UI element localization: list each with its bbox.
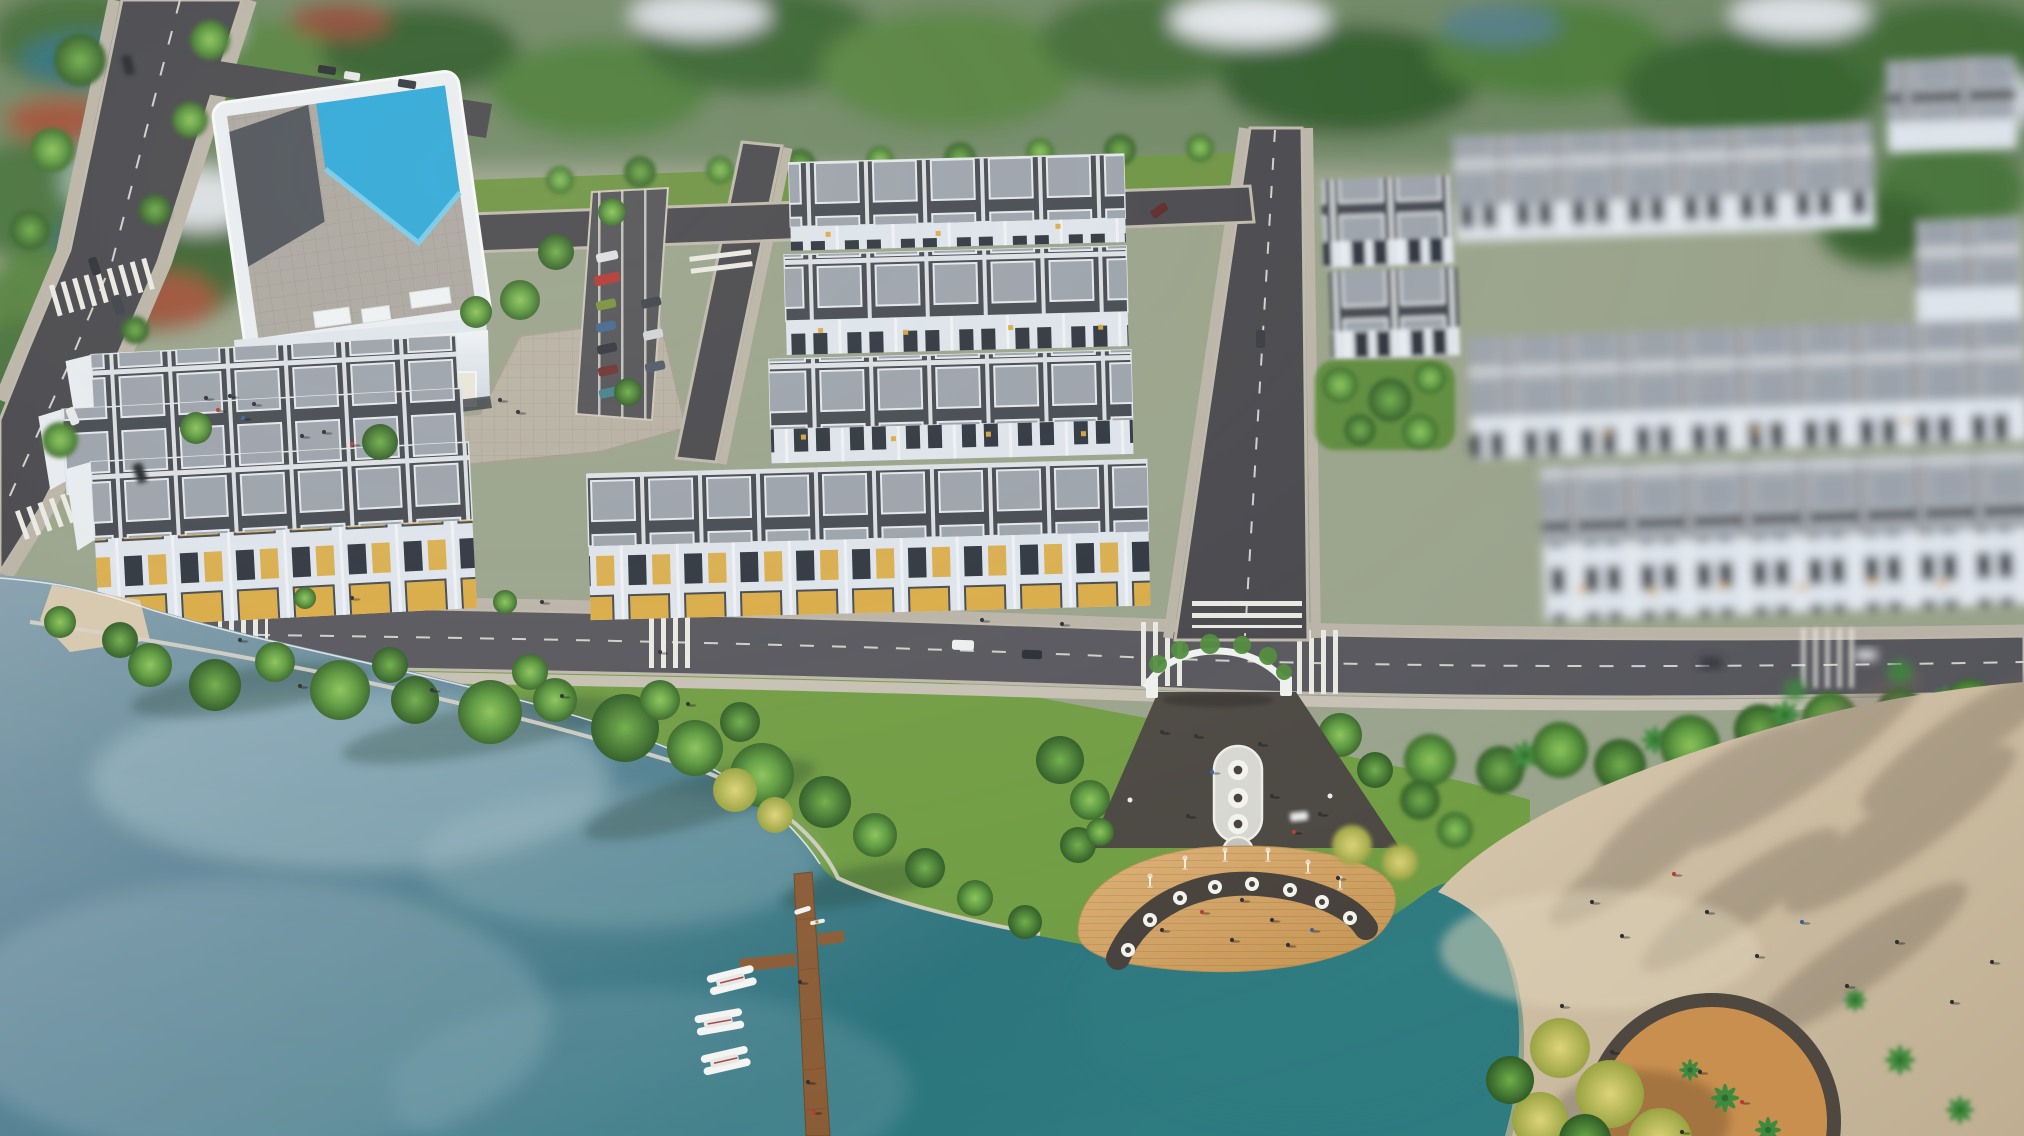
aerial-render-svg: Aerial 3D rendering of a lakeside reside… <box>0 0 2024 1136</box>
sunlight-overlay <box>0 0 2024 1136</box>
aerial-render-image: Aerial 3D rendering of a lakeside reside… <box>0 0 2024 1136</box>
